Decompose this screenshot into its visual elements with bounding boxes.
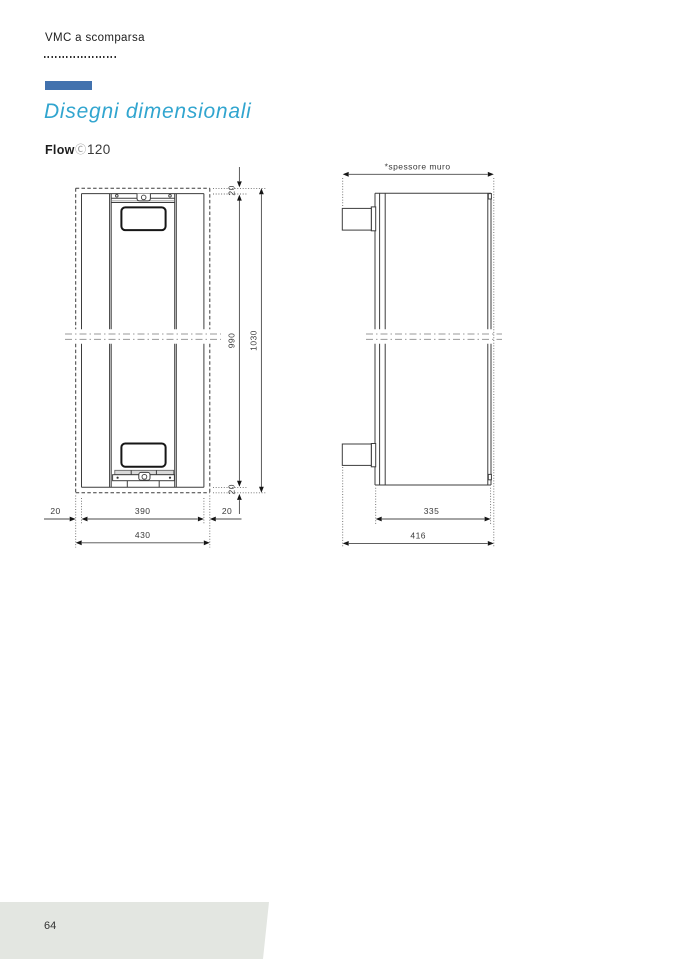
- svg-text:990: 990: [226, 333, 236, 349]
- svg-text:20: 20: [50, 506, 60, 516]
- svg-text:335: 335: [424, 506, 440, 516]
- svg-text:430: 430: [135, 530, 151, 540]
- svg-text:20: 20: [222, 506, 232, 516]
- svg-text:20: 20: [226, 185, 236, 195]
- svg-text:1030: 1030: [249, 330, 259, 351]
- svg-text:20: 20: [226, 484, 236, 494]
- svg-text:390: 390: [135, 506, 151, 516]
- svg-text:416: 416: [410, 530, 426, 540]
- svg-text:*spessore muro: *spessore muro: [385, 161, 451, 171]
